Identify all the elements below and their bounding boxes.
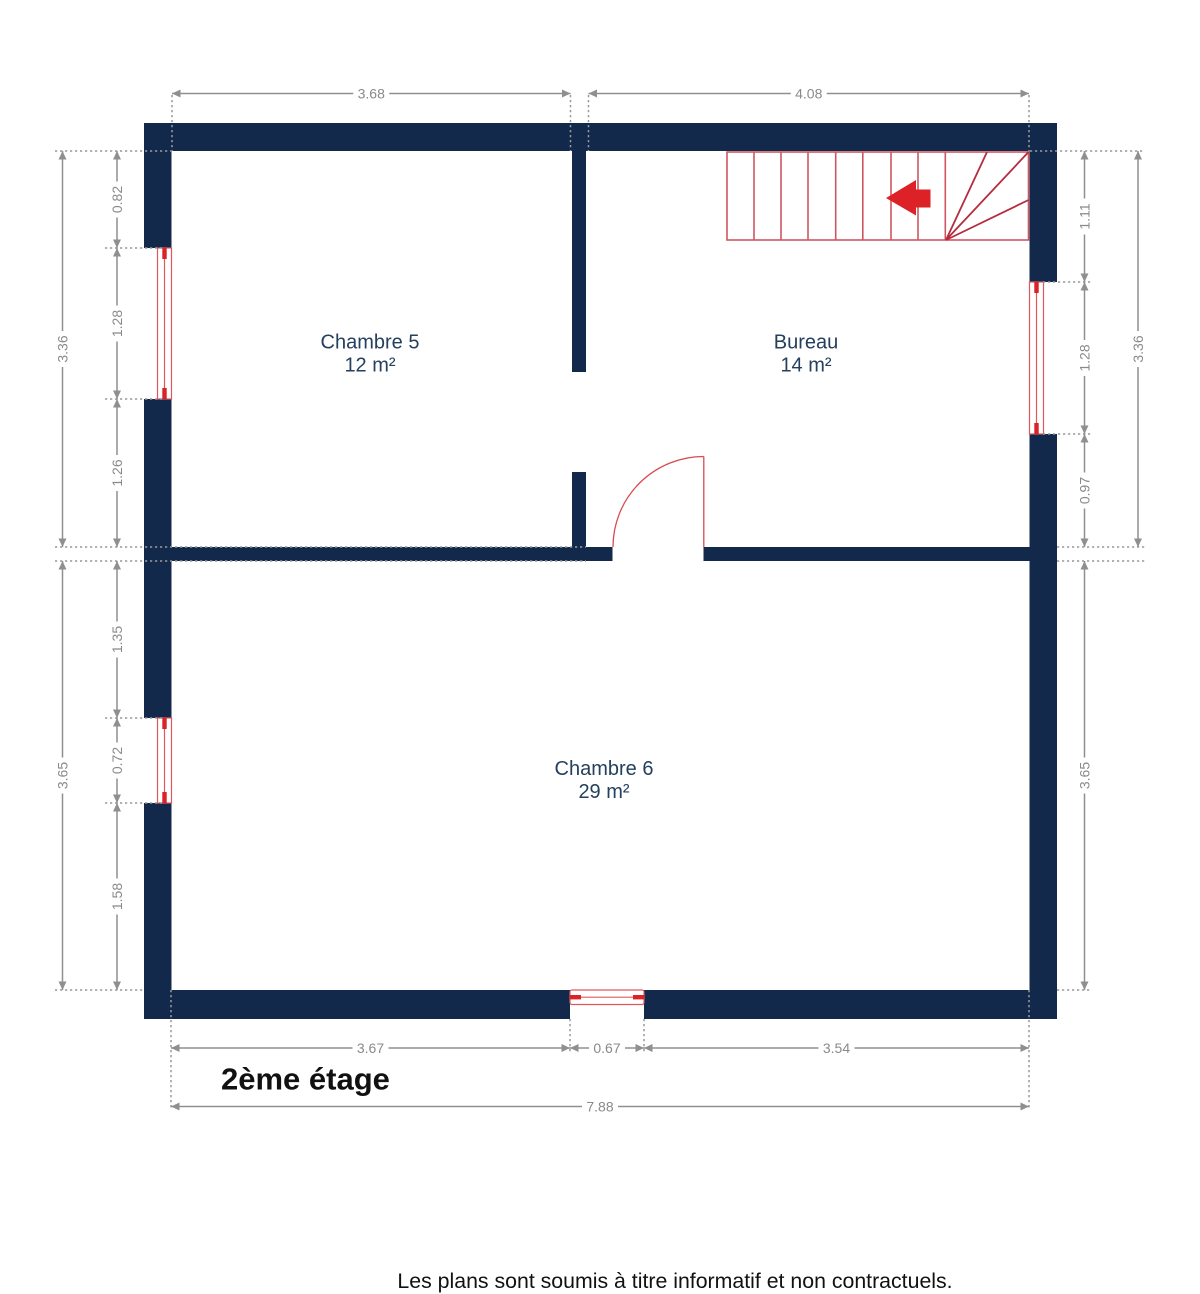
svg-text:0.82: 0.82 [109,186,125,213]
svg-text:Chambre 5: Chambre 5 [321,331,420,353]
svg-text:0.97: 0.97 [1077,477,1093,504]
svg-text:29 m²: 29 m² [578,781,629,803]
svg-text:1.28: 1.28 [109,310,125,337]
svg-text:3.68: 3.68 [358,86,385,102]
svg-text:2ème étage: 2ème étage [221,1061,390,1096]
svg-text:Chambre 6: Chambre 6 [555,758,654,780]
svg-text:0.72: 0.72 [109,747,125,774]
svg-text:Les plans sont soumis à titre: Les plans sont soumis à titre informatif… [397,1269,952,1293]
svg-text:1.35: 1.35 [109,626,125,653]
svg-text:3.54: 3.54 [823,1040,850,1056]
svg-text:3.65: 3.65 [55,762,71,789]
svg-text:3.65: 3.65 [1077,762,1093,789]
svg-text:Bureau: Bureau [774,331,839,353]
svg-text:1.28: 1.28 [1077,344,1093,371]
svg-text:4.08: 4.08 [795,86,822,102]
svg-text:7.88: 7.88 [586,1099,613,1115]
svg-text:3.67: 3.67 [357,1040,384,1056]
svg-text:12 m²: 12 m² [344,354,395,376]
svg-text:3.36: 3.36 [55,335,71,362]
svg-text:1.26: 1.26 [109,459,125,486]
svg-text:14 m²: 14 m² [780,354,831,376]
svg-text:1.58: 1.58 [109,883,125,910]
svg-text:0.67: 0.67 [593,1040,620,1056]
svg-text:1.11: 1.11 [1077,203,1093,229]
svg-text:3.36: 3.36 [1130,335,1146,362]
